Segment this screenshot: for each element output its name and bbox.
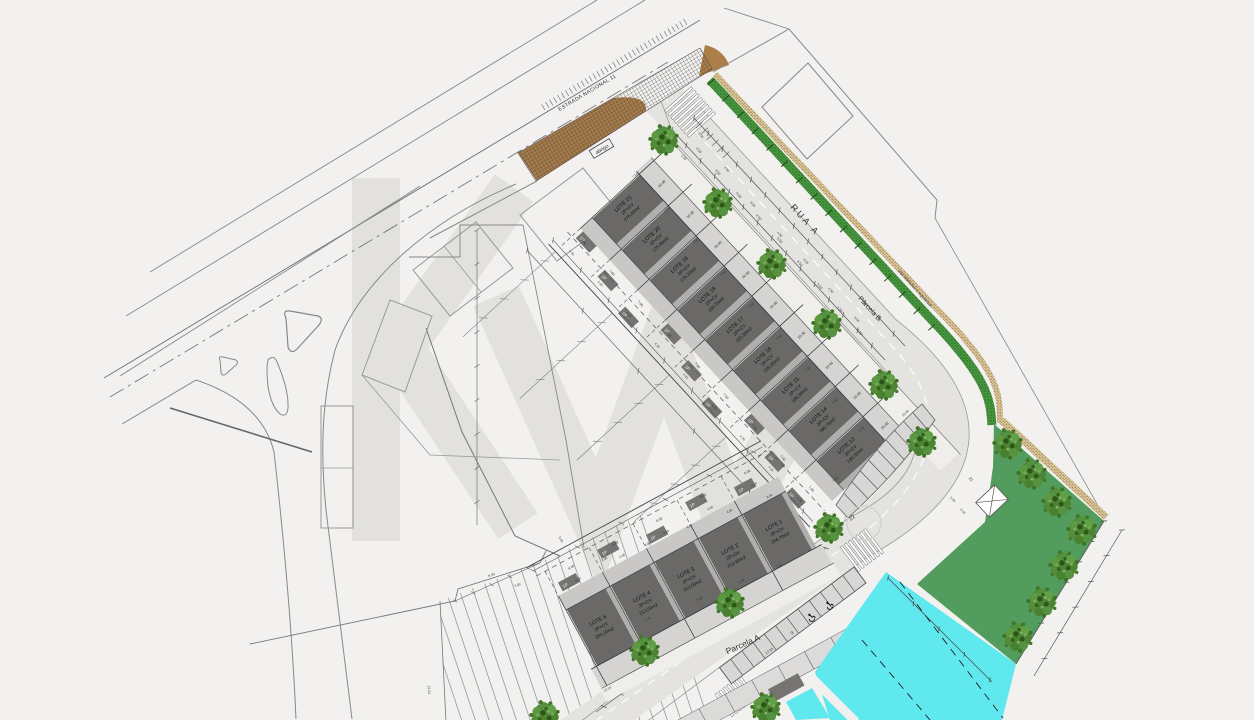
svg-text:21.91: 21.91 bbox=[427, 686, 431, 695]
